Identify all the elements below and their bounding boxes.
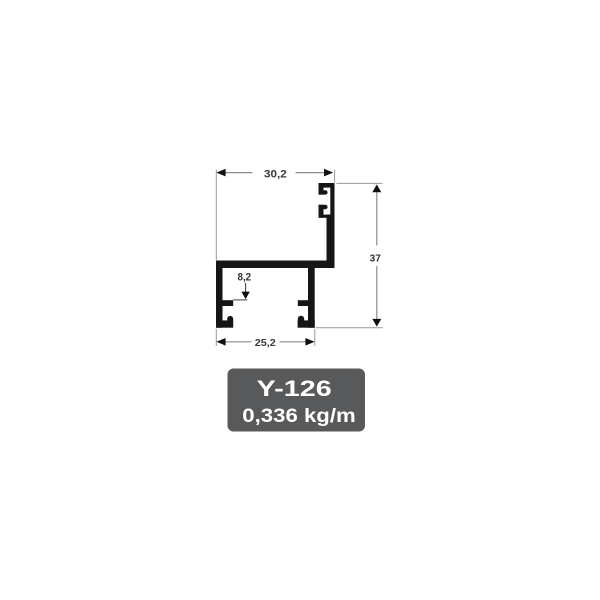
svg-text:0,336 kg/m: 0,336 kg/m bbox=[242, 405, 356, 427]
svg-text:8,2: 8,2 bbox=[238, 271, 252, 283]
svg-text:37: 37 bbox=[370, 253, 381, 264]
svg-text:30,2: 30,2 bbox=[264, 168, 287, 180]
svg-text:Y-126: Y-126 bbox=[257, 376, 332, 401]
svg-text:25,2: 25,2 bbox=[255, 338, 276, 349]
